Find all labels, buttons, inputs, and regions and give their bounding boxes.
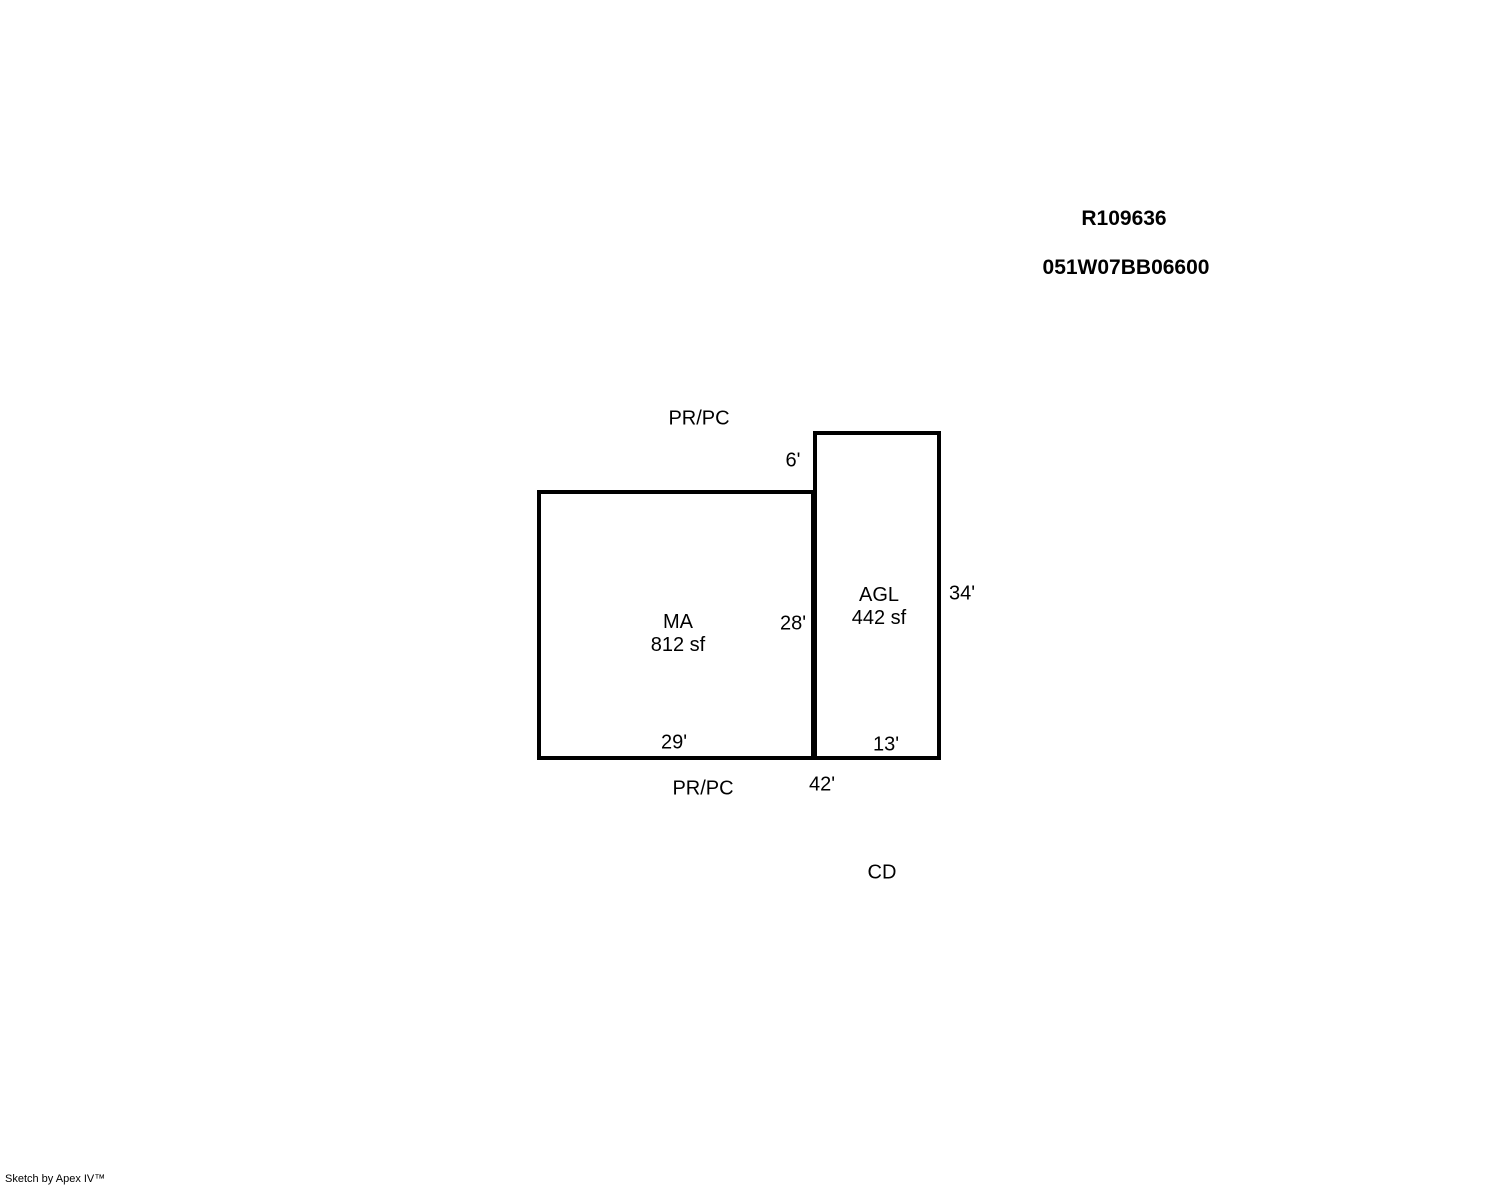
record-id-label: R109636 bbox=[1081, 207, 1166, 231]
ma-area-code: MA bbox=[651, 611, 705, 634]
dimension-ma-bottom: 29' bbox=[661, 732, 687, 755]
dimension-agl-top-offset: 6' bbox=[786, 450, 801, 473]
agl-area-code: AGL bbox=[852, 584, 906, 607]
sketch-page: R109636 051W07BB06600 MA 812 sf AGL 442 … bbox=[0, 0, 1488, 1190]
dimension-ma-right: 28' bbox=[780, 613, 806, 636]
dimension-agl-bottom: 13' bbox=[873, 734, 899, 757]
dimension-total-bottom: 42' bbox=[809, 774, 835, 797]
boundary-label-bottom: PR/PC bbox=[672, 778, 733, 801]
sketch-credit: Sketch by Apex IV™ bbox=[5, 1173, 105, 1185]
parcel-id-label: 051W07BB06600 bbox=[1043, 256, 1210, 280]
cd-label: CD bbox=[868, 862, 897, 885]
dimension-agl-right: 34' bbox=[949, 583, 975, 606]
agl-area-label: AGL 442 sf bbox=[852, 584, 906, 630]
agl-area-size: 442 sf bbox=[852, 607, 906, 630]
boundary-label-top: PR/PC bbox=[668, 408, 729, 431]
ma-area-label: MA 812 sf bbox=[651, 611, 705, 657]
ma-area-size: 812 sf bbox=[651, 634, 705, 657]
